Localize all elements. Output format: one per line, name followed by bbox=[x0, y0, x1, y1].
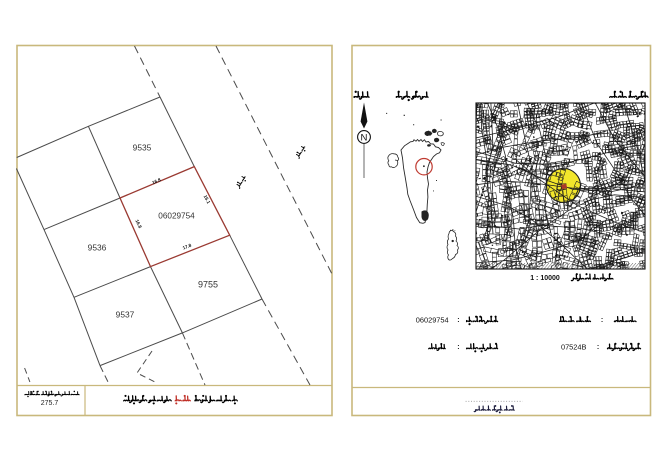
svg-text:9536: 9536 bbox=[88, 243, 107, 253]
svg-text:9537: 9537 bbox=[116, 310, 135, 320]
svg-text:275.7: 275.7 bbox=[41, 400, 59, 407]
svg-text:9755: 9755 bbox=[198, 280, 218, 290]
svg-text:06029754: 06029754 bbox=[416, 315, 449, 324]
svg-text:17.8: 17.8 bbox=[182, 243, 193, 251]
svg-text:1 : 10000: 1 : 10000 bbox=[530, 275, 560, 282]
svg-text:16.8: 16.8 bbox=[134, 219, 143, 230]
svg-text:N: N bbox=[361, 133, 368, 144]
svg-text:07524B: 07524B bbox=[561, 342, 587, 351]
svg-text::: : bbox=[457, 344, 459, 351]
svg-text:9535: 9535 bbox=[133, 143, 152, 153]
svg-text::: : bbox=[457, 317, 459, 324]
svg-text::: : bbox=[601, 317, 603, 324]
svg-text:16.8: 16.8 bbox=[151, 177, 162, 185]
svg-text::: : bbox=[597, 344, 599, 351]
svg-text:06029754: 06029754 bbox=[158, 212, 195, 221]
